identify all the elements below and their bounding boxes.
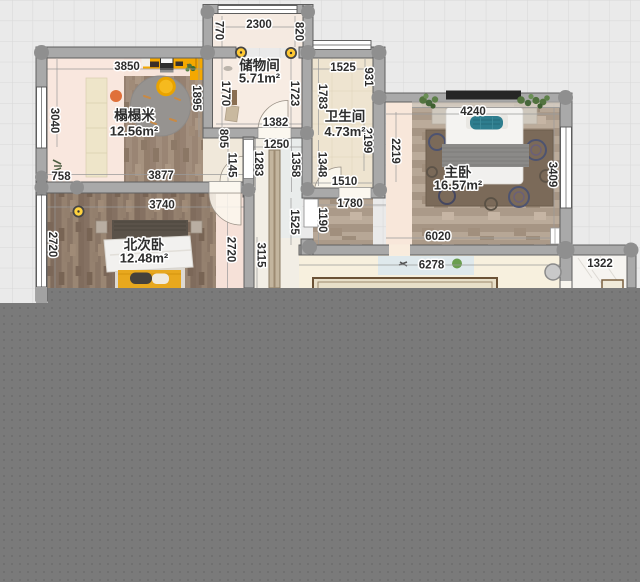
svg-text:1283: 1283 bbox=[252, 151, 264, 177]
svg-text:1348: 1348 bbox=[316, 152, 328, 178]
svg-text:卫生间: 卫生间 bbox=[325, 108, 366, 124]
svg-text:1510: 1510 bbox=[332, 176, 358, 188]
svg-text:12.48m²: 12.48m² bbox=[120, 251, 169, 266]
svg-text:805: 805 bbox=[217, 129, 229, 149]
svg-text:1770: 1770 bbox=[219, 81, 231, 107]
svg-text:2720: 2720 bbox=[225, 237, 237, 263]
svg-text:770: 770 bbox=[213, 21, 225, 40]
svg-text:1525: 1525 bbox=[330, 62, 356, 74]
svg-text:3877: 3877 bbox=[148, 170, 174, 182]
svg-text:931: 931 bbox=[362, 67, 374, 87]
svg-text:3040: 3040 bbox=[48, 108, 60, 134]
svg-text:1723: 1723 bbox=[288, 81, 300, 107]
svg-text:3850: 3850 bbox=[114, 61, 140, 73]
svg-text:12.56m²: 12.56m² bbox=[110, 124, 159, 139]
svg-text:6020: 6020 bbox=[425, 231, 451, 243]
svg-text:2720: 2720 bbox=[46, 232, 58, 258]
svg-text:1322: 1322 bbox=[587, 258, 613, 270]
svg-text:820: 820 bbox=[293, 22, 305, 41]
svg-text:1895: 1895 bbox=[190, 85, 202, 111]
svg-text:1358: 1358 bbox=[289, 152, 301, 178]
svg-text:1145: 1145 bbox=[226, 153, 238, 179]
svg-text:榻榻米: 榻榻米 bbox=[114, 107, 155, 123]
svg-text:1783: 1783 bbox=[316, 84, 328, 110]
svg-text:3740: 3740 bbox=[149, 200, 175, 212]
svg-text:758: 758 bbox=[51, 171, 71, 183]
svg-text:5.71m²: 5.71m² bbox=[239, 71, 281, 86]
svg-text:3115: 3115 bbox=[255, 243, 267, 269]
svg-text:1250: 1250 bbox=[264, 139, 290, 151]
svg-text:16.57m²: 16.57m² bbox=[434, 178, 483, 193]
svg-text:1382: 1382 bbox=[263, 117, 289, 129]
svg-text:4.73m²: 4.73m² bbox=[324, 124, 366, 139]
svg-text:2219: 2219 bbox=[389, 138, 401, 164]
svg-text:1525: 1525 bbox=[288, 209, 300, 235]
svg-text:3409: 3409 bbox=[546, 162, 558, 188]
svg-text:1780: 1780 bbox=[337, 198, 363, 210]
svg-text:6278: 6278 bbox=[419, 260, 445, 272]
svg-text:1190: 1190 bbox=[316, 208, 328, 233]
svg-text:4240: 4240 bbox=[460, 106, 486, 118]
svg-text:2300: 2300 bbox=[246, 19, 272, 31]
